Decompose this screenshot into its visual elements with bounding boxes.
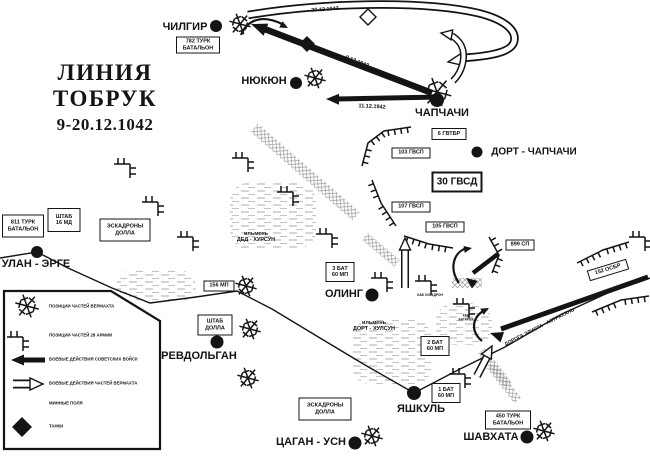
town-label-line: РЕВДОЛЬГАН (161, 350, 237, 362)
wehrmacht-attack-arrowhead (400, 238, 411, 250)
town-dot (31, 246, 43, 258)
soviet-attack-arrowhead (464, 245, 473, 253)
map-label: ильменьДОРТ - ХУЛСУН (353, 320, 395, 332)
unit-box-line: 6 ГВТБР (438, 131, 460, 137)
army28-position-symbol (232, 152, 254, 172)
unit-box-line: 60 МП (332, 272, 348, 278)
unit-box-line: 156 МП (209, 283, 228, 289)
town-dot (349, 437, 362, 450)
town-label-line: ЧАПЧАЧИ (415, 107, 469, 119)
town-dot (521, 431, 534, 444)
wehrmacht-position-symbol (533, 421, 554, 442)
unit-box-line: ДОЛЛА (115, 230, 135, 236)
town-label-line: ДОРТ - ЧАПЧАЧИ (491, 146, 576, 157)
legend-label-tank-symbol: ТАНКИ (49, 425, 63, 430)
army28-position-symbol (316, 228, 338, 248)
unit-box-line: 103 ГВСП (398, 150, 424, 156)
army28-position-symbol (629, 231, 650, 251)
map-title: ЛИНИЯ ТОБРУК 9-20.12.1042 (14, 60, 196, 135)
legend-label-tank-symbol-line: ТАНКИ (49, 425, 63, 430)
unit-box: 899 СП (506, 240, 535, 251)
legend-label-soviet-attack-arrow-line: БОЕВЫЕ ДЕЙСТВИЯ СОВЕТСКИХ ВОЙСК (49, 358, 138, 363)
unit-box: ШТАБ16 МД (48, 208, 81, 232)
tobruk-line-map: ЛИНИЯ ТОБРУК 9-20.12.1042 ЧИЛГИРНЮКЮНЧАП… (0, 0, 650, 456)
legend-label-soviet-attack-arrow: БОЕВЫЕ ДЕЙСТВИЯ СОВЕТСКИХ ВОЙСК (49, 358, 138, 363)
legend-label-army28-position-symbol-line: ПОЗИЦИИ ЧАСТЕЙ 28 АРМИИ (49, 334, 112, 339)
town-label-line: ЯШКУЛЬ (397, 403, 445, 415)
map-label: ильменьДЕД - ХУРСУН (237, 231, 275, 243)
town-dot (430, 93, 444, 107)
wehrmacht-position-symbol (239, 319, 260, 340)
map-label: КАВБАТАРЕЯ (459, 314, 474, 321)
unit-box: 156 МП (204, 281, 235, 292)
town-label-line: НЮКЮН (241, 75, 286, 87)
soviet-attack-arrowhead (326, 94, 339, 105)
legend-label-minefield-symbol: МИННЫЕ ПОЛЯ (49, 402, 83, 407)
lake-area (116, 270, 196, 302)
town-label: ЯШКУЛЬ (397, 403, 445, 415)
legend-label-wehrmacht-attack-arrow-line: БОЕВЫЕ ДЕЙСТВИЯ ЧАСТЕЙ ВЕРМАХТА (49, 382, 137, 387)
soviet-attack-arrow (337, 97, 441, 99)
unit-box: 30 ГВСД (432, 172, 483, 193)
soviet-attack-arrow (473, 254, 498, 273)
unit-box: 107 ГВСП (392, 202, 431, 213)
town-label-line: ЧИЛГИР (163, 21, 208, 33)
town-label-line: ШАВХАТА (463, 431, 518, 443)
unit-box-line: ДОЛЛА (205, 325, 225, 331)
legend-label-minefield-symbol-line: МИННЫЕ ПОЛЯ (49, 402, 83, 407)
town-dot (472, 147, 483, 158)
legend-label-wehrmacht-position-symbol-line: ПОЗИЦИИ ЧАСТЕЙ ВЕРМАХТА (49, 305, 114, 310)
town-label-line: УЛАН - ЭРГЕ (2, 258, 71, 270)
map-title-line2: 9-20.12.1042 (14, 115, 196, 135)
unit-box-line: БАТАЛЬОН (8, 226, 38, 232)
unit-box: ЭСКАДРОНЫДОЛЛА (100, 219, 151, 242)
unit-box-line: ДОЛЛА (315, 409, 335, 415)
army28-position-symbol (177, 231, 199, 251)
tank-symbol (360, 9, 376, 25)
unit-box: 811 ТУРКБАТАЛЬОН (2, 215, 44, 238)
unit-box: ЭСКАДРОНЫДОЛЛА (299, 398, 352, 421)
map-label: КАВ ЭСКАДРОН (417, 294, 443, 298)
wehrmacht-position-symbol (237, 368, 258, 389)
unit-box: 3 БАТ60 МП (326, 262, 355, 282)
unit-box: 105 ГВСП (426, 222, 465, 233)
legend-label-army28-position-symbol: ПОЗИЦИИ ЧАСТЕЙ 28 АРМИИ (49, 334, 112, 339)
town-label: ШАВХАТА (463, 431, 518, 443)
minefield-area (362, 233, 400, 267)
town-label: ОЛИНГ (325, 288, 363, 300)
wehrmacht-position-symbol (235, 276, 256, 297)
unit-box: ШТАБДОЛЛА (198, 315, 233, 336)
town-label: УЛАН - ЭРГЕ (2, 258, 71, 270)
town-dot (366, 289, 379, 302)
town-label: ДОРТ - ЧАПЧАЧИ (491, 146, 576, 157)
unit-box: 782 ТУРКБАТАЛЬОН (176, 37, 220, 54)
wehrmacht-position-symbol (304, 68, 325, 89)
town-label: НЮКЮН (241, 75, 286, 87)
unit-box: 1 БАТ60 МП (432, 383, 461, 403)
minefield-area (487, 363, 521, 403)
unit-box: 450 ТУРКБАТАЛЬОН (485, 411, 531, 430)
town-label-line: ОЛИНГ (325, 288, 363, 300)
defensive-line (404, 236, 453, 252)
map-label-line: ДОРТ - ХУЛСУН (353, 326, 395, 332)
town-dot (290, 77, 302, 89)
unit-box-line: 60 МП (438, 393, 454, 399)
unit-box-line: 16 МД (56, 220, 72, 226)
wehrmacht-position-symbol (361, 426, 382, 447)
unit-box: 6 ГВТБР (432, 128, 467, 140)
legend-label-wehrmacht-position-symbol: ПОЗИЦИИ ЧАСТЕЙ ВЕРМАХТА (49, 305, 114, 310)
town-dot (407, 386, 421, 400)
legend-label-wehrmacht-attack-arrow: БОЕВЫЕ ДЕЙСТВИЯ ЧАСТЕЙ ВЕРМАХТА (49, 382, 137, 387)
unit-box-line: 105 ГВСП (432, 224, 458, 230)
army28-position-symbol (114, 158, 136, 178)
town-label: ЧАПЧАЧИ (415, 107, 469, 119)
town-label: ЦАГАН - УСН (276, 436, 346, 448)
town-label-line: ЦАГАН - УСН (276, 436, 346, 448)
map-label-line: БАТАРЕЯ (459, 318, 474, 322)
unit-box-line: 60 МП (427, 346, 443, 352)
defensive-line (362, 127, 411, 166)
unit-box: 2 БАТ60 МП (421, 336, 450, 356)
map-label-line: КАВ ЭСКАДРОН (417, 294, 443, 298)
defensive-line (592, 296, 649, 316)
town-label: ЧИЛГИР (163, 21, 208, 33)
army28-position-symbol (142, 196, 164, 216)
unit-box-line: БАТАЛЬОН (183, 45, 213, 51)
map-label-line: ДЕД - ХУРСУН (237, 237, 275, 243)
wehrmacht-attack-arrowhead (440, 28, 453, 40)
soviet-attack-arrow (453, 248, 467, 283)
unit-box-line: 107 ГВСП (398, 204, 424, 210)
map-title-line1: ЛИНИЯ ТОБРУК (14, 60, 196, 112)
wehrmacht-position-symbol (229, 14, 250, 35)
unit-box-line: 899 СП (511, 242, 530, 248)
unit-box: 103 ГВСП (392, 148, 431, 159)
town-dot (211, 336, 224, 349)
army28-position-symbol (415, 275, 437, 295)
town-label: РЕВДОЛЬГАН (161, 350, 237, 362)
town-dot (210, 20, 222, 32)
unit-box-line: БАТАЛЬОН (493, 420, 523, 426)
unit-box-line: 30 ГВСД (437, 176, 478, 188)
